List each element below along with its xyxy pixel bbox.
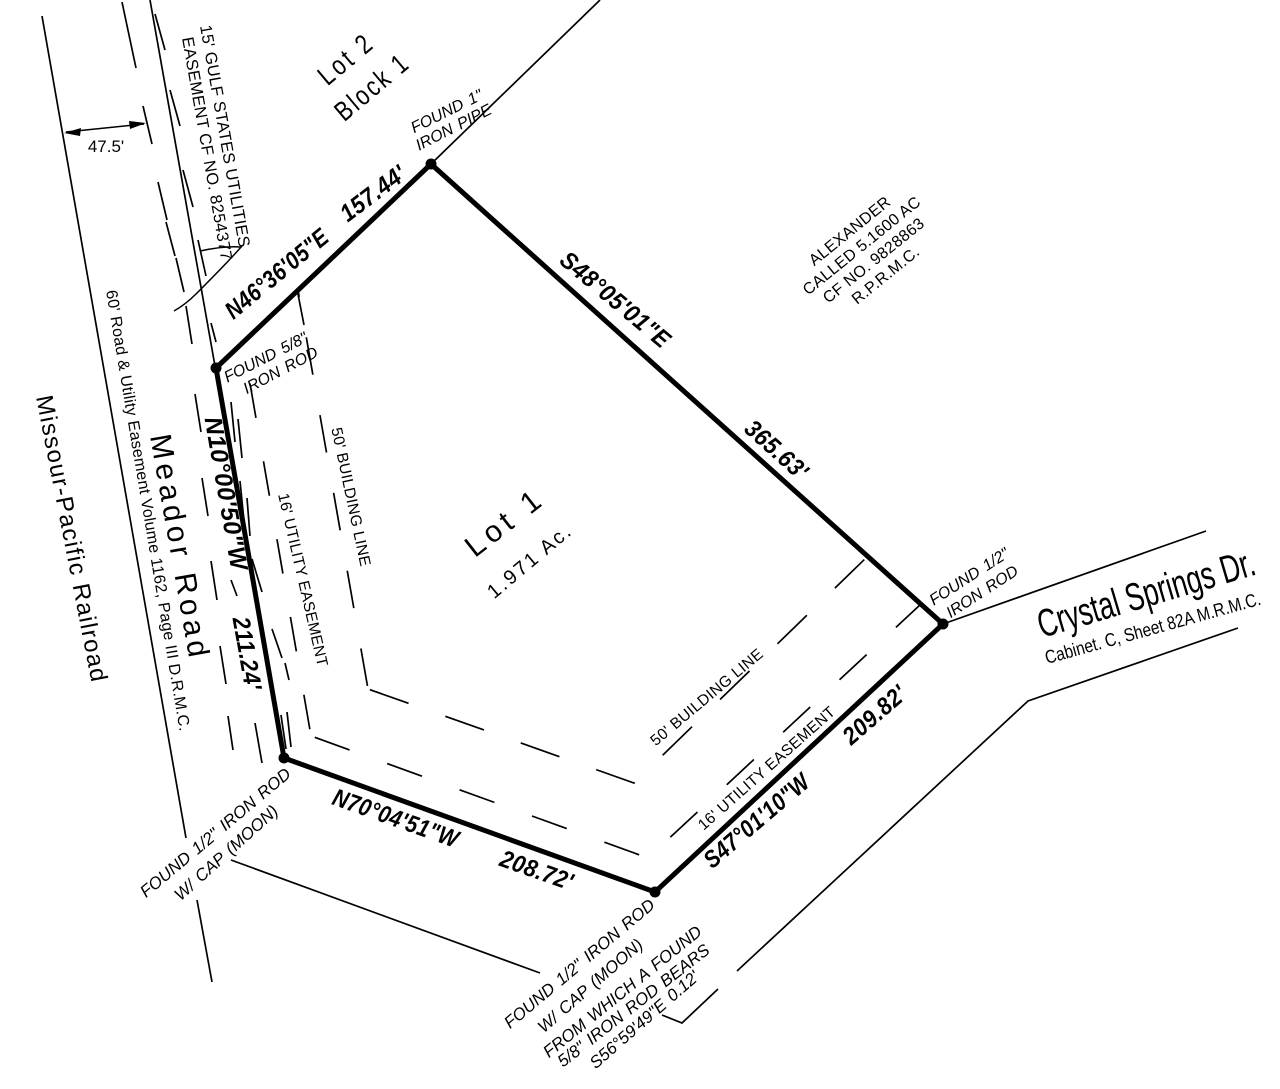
svg-text:47.5': 47.5' [88, 137, 124, 156]
